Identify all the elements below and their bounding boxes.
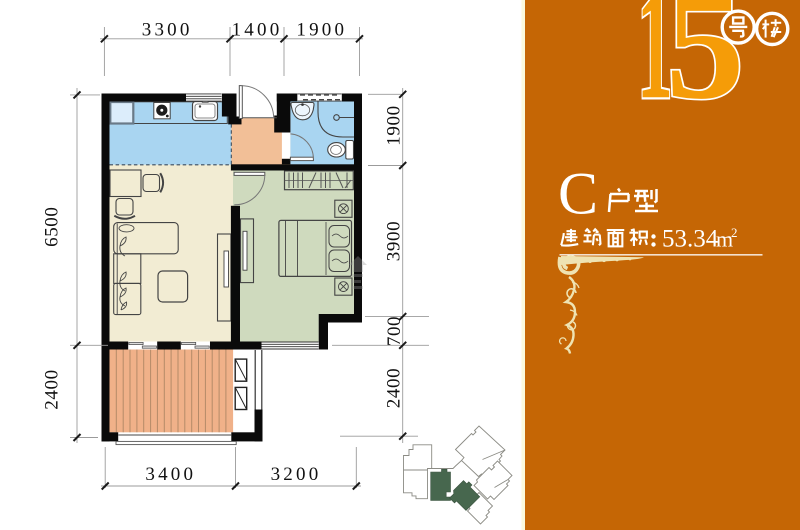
svg-text:2400: 2400	[384, 368, 405, 408]
svg-text:700: 700	[384, 316, 405, 346]
svg-text:3300: 3300	[142, 20, 193, 41]
svg-text:6500: 6500	[42, 206, 63, 246]
svg-text:1900: 1900	[296, 20, 347, 41]
svg-text:1400: 1400	[232, 20, 283, 41]
svg-text:C: C	[558, 161, 598, 227]
svg-text:1900: 1900	[384, 105, 405, 145]
svg-text:3900: 3900	[384, 221, 405, 261]
svg-text:2400: 2400	[42, 369, 63, 409]
svg-text:2: 2	[731, 225, 738, 240]
svg-text:3400: 3400	[145, 464, 196, 485]
svg-text:53.34: 53.34	[662, 226, 719, 253]
svg-text:3200: 3200	[271, 464, 322, 485]
